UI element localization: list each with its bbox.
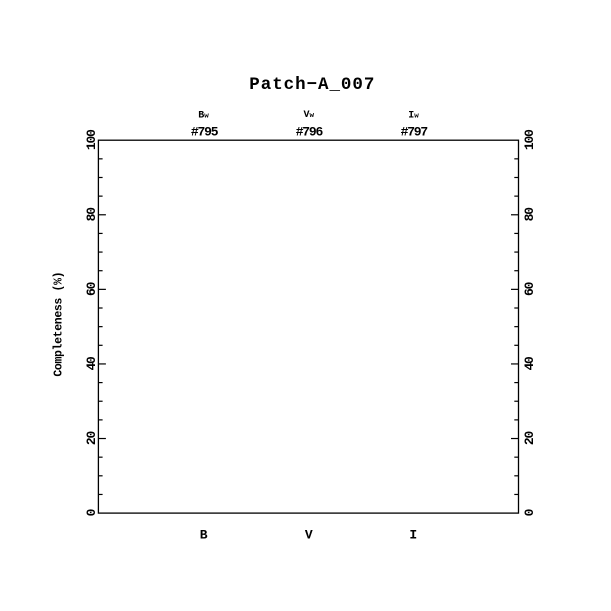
svg-text:#797: #797	[401, 124, 428, 139]
svg-text:Bw: Bw	[198, 111, 209, 122]
svg-text:80: 80	[522, 207, 537, 222]
svg-text:#795: #795	[191, 124, 219, 139]
svg-text:0: 0	[522, 508, 537, 516]
svg-text:40: 40	[522, 356, 537, 371]
svg-text:20: 20	[522, 431, 537, 446]
svg-text:B: B	[200, 527, 208, 542]
svg-text:40: 40	[84, 356, 99, 371]
svg-text:80: 80	[84, 207, 99, 222]
svg-text:60: 60	[522, 281, 537, 296]
svg-text:#796: #796	[296, 124, 324, 139]
svg-text:Patch−A_007: Patch−A_007	[249, 75, 375, 95]
svg-text:I: I	[409, 527, 417, 542]
svg-text:Vw: Vw	[304, 110, 315, 121]
svg-text:100: 100	[84, 129, 99, 150]
svg-text:Completeness (%): Completeness (%)	[53, 272, 66, 377]
svg-text:20: 20	[84, 431, 99, 446]
svg-text:Iw: Iw	[408, 111, 419, 122]
svg-text:V: V	[305, 527, 313, 542]
svg-text:0: 0	[84, 508, 99, 516]
svg-text:60: 60	[84, 281, 99, 296]
svg-text:100: 100	[522, 129, 537, 150]
